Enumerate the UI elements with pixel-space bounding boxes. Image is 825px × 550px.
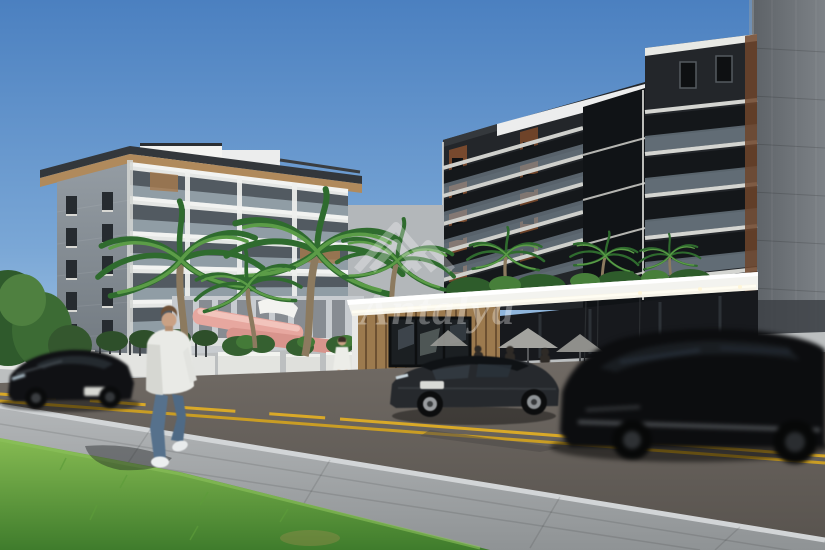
far-right-grey-tower (749, 0, 825, 342)
scene-svg: Antalya (0, 0, 825, 550)
license-plate (420, 381, 444, 389)
render-image: Antalya (0, 0, 825, 550)
watermark-text: Antalya (357, 285, 516, 334)
